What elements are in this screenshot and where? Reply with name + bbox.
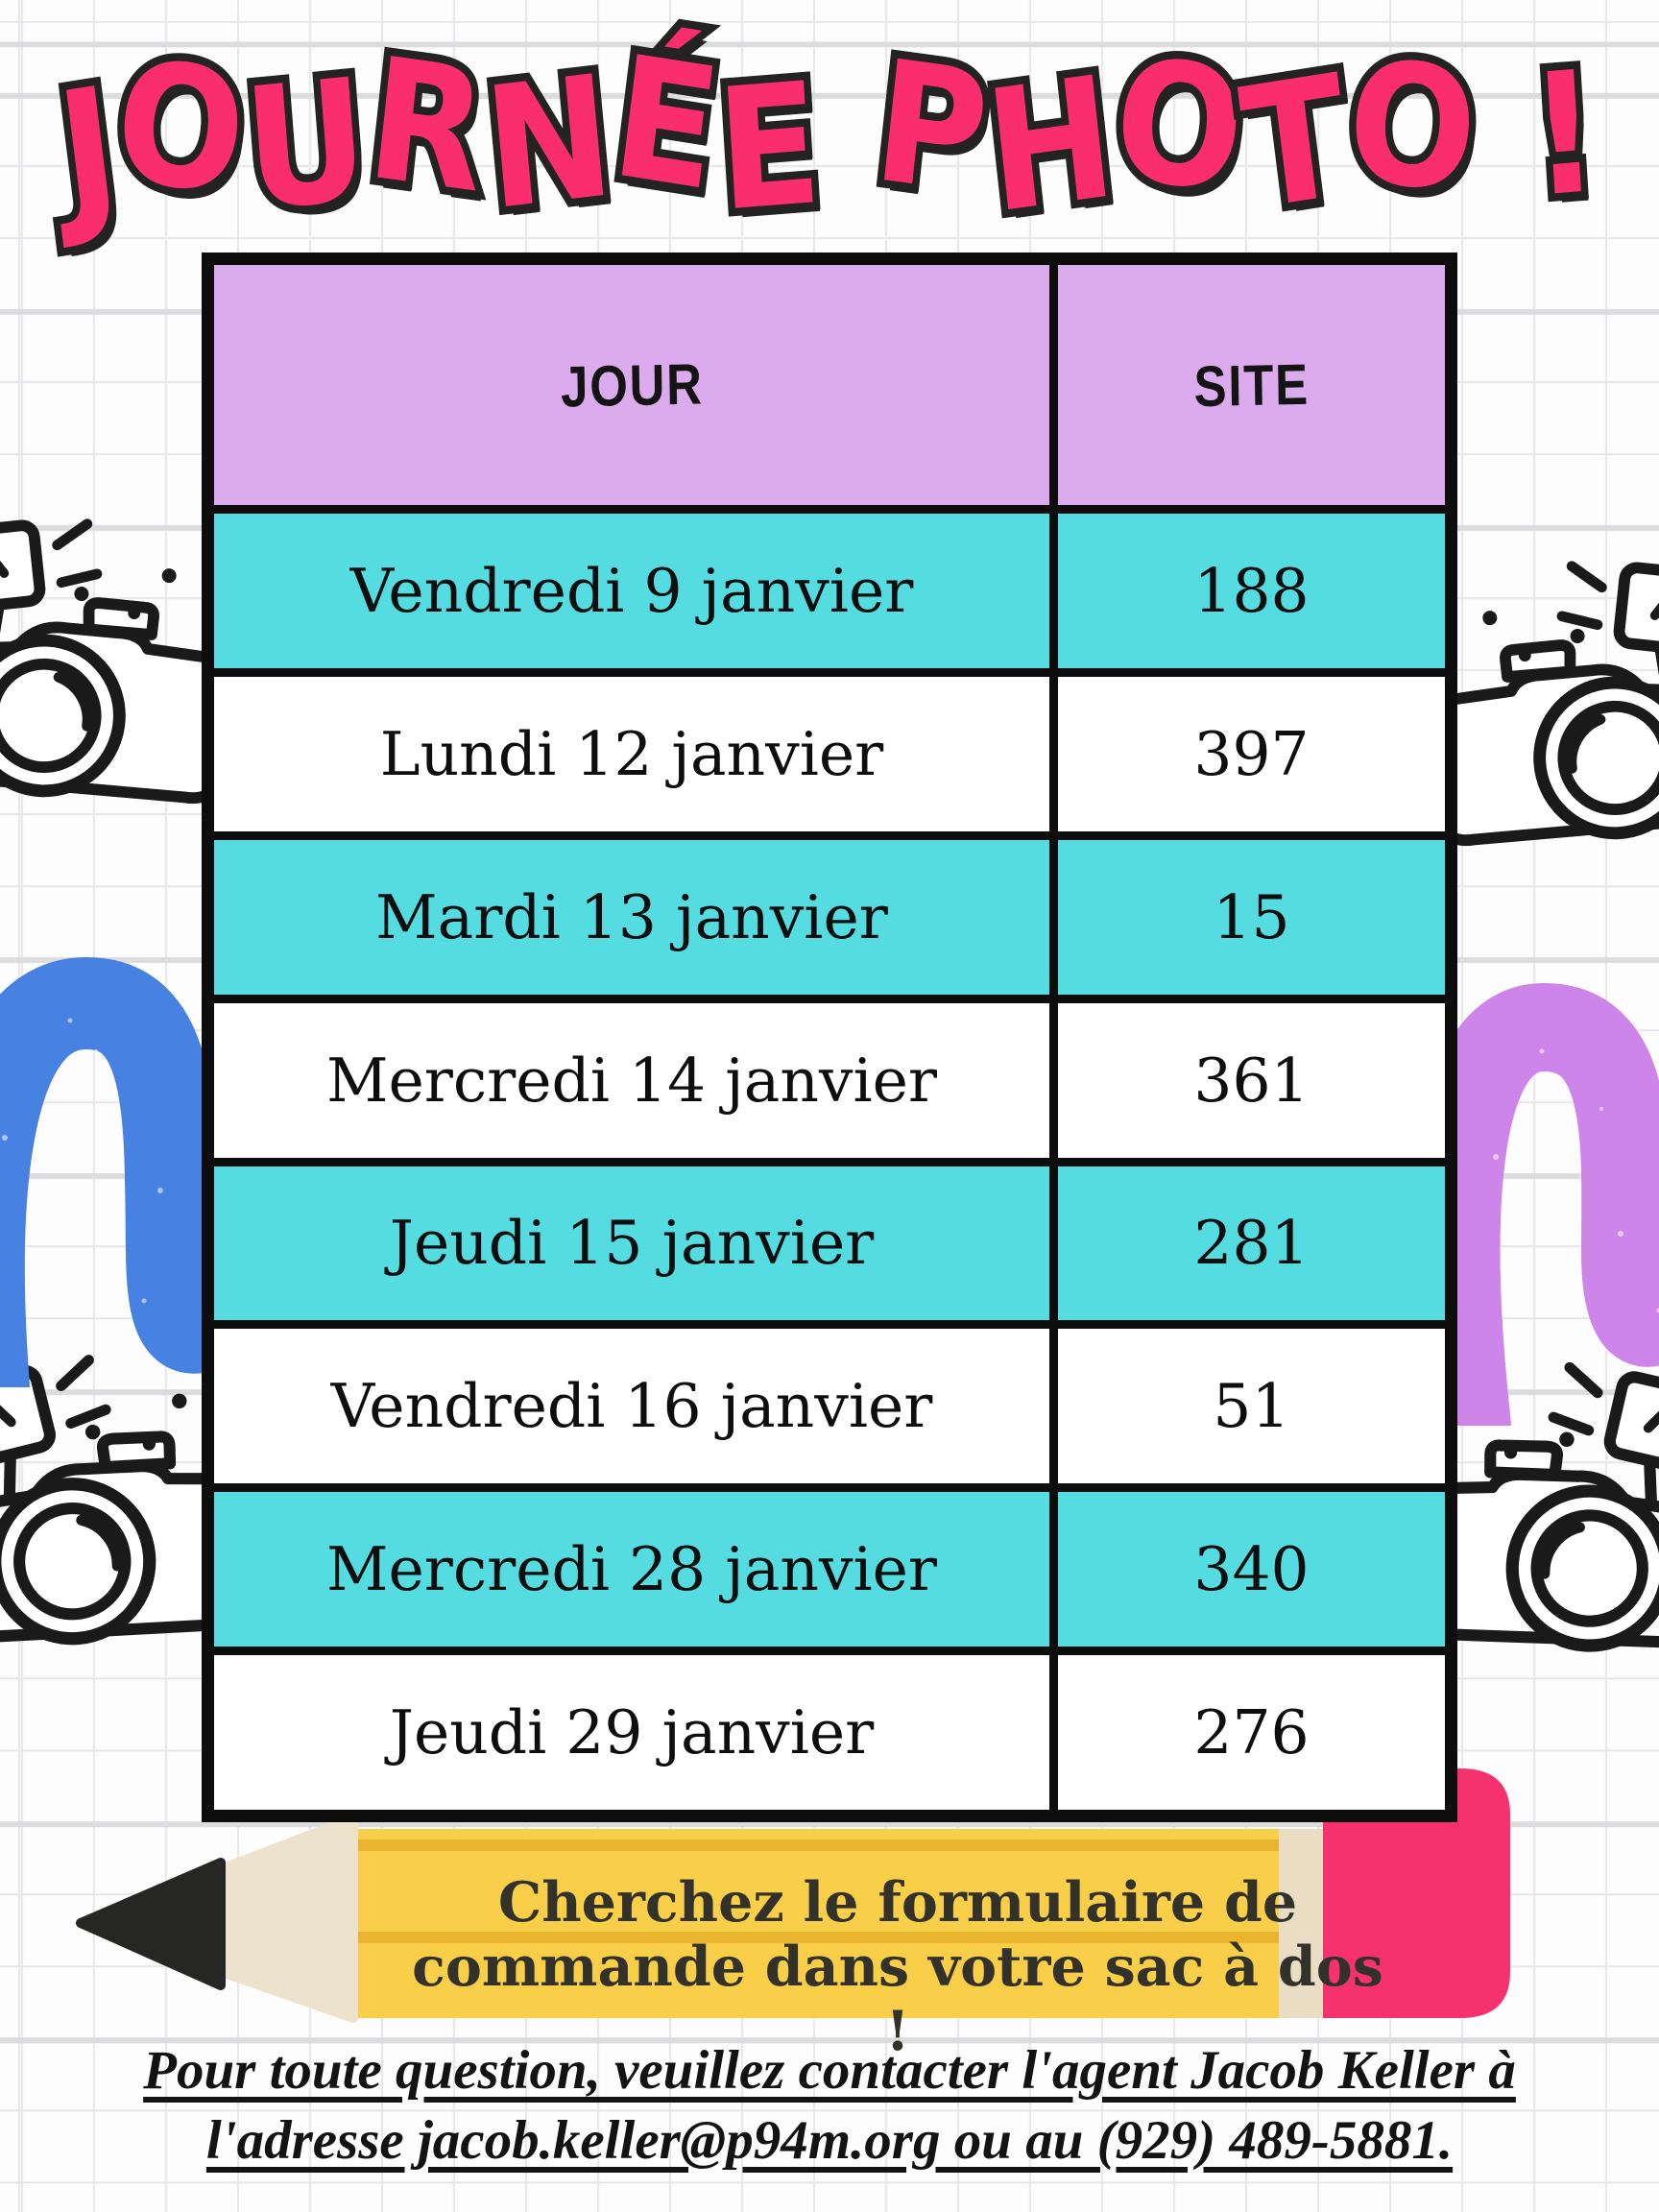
day-label: Jeudi 29 janvier [390,1697,875,1767]
column-header-jour: JOUR [214,265,1049,505]
contact-note-line2: l'adresse jacob.keller@p94m.org ou au (9… [29,2105,1630,2176]
table-row-site-cell: 361 [1058,1003,1445,1158]
table-row-day-cell: Vendredi 9 janvier [214,514,1049,668]
day-label: Lundi 12 janvier [380,719,884,789]
contact-note: Pour toute question, veuillez contacter … [29,2035,1630,2176]
column-header-site: SITE [1058,265,1445,505]
contact-note-line1-text: Pour toute question, veuillez contacter … [143,2040,1516,2101]
day-label: Mardi 13 janvier [375,882,888,952]
site-number: 188 [1193,556,1309,626]
site-number: 340 [1193,1534,1309,1604]
table-row-day-cell: Jeudi 29 janvier [214,1655,1049,1810]
poster-title: JOURNÉEPHOTO! [0,12,1659,261]
table-row-day-cell: Jeudi 15 janvier [214,1166,1049,1321]
pencil-note-line1: Cherchez le formulaire de [403,1870,1392,1935]
site-number: 361 [1193,1046,1309,1116]
table-row-day-cell: Mardi 13 janvier [214,840,1049,995]
table-row-day-cell: Mercredi 28 janvier [214,1492,1049,1647]
table-row-site-cell: 15 [1058,840,1445,995]
column-header-jour-label: JOUR [560,350,703,420]
site-number: 281 [1193,1208,1309,1278]
site-number: 51 [1213,1371,1289,1441]
table-row-site-cell: 340 [1058,1492,1445,1647]
table-row-site-cell: 276 [1058,1655,1445,1810]
photo-day-table: JOUR SITE Vendredi 9 janvier 188 Lundi 1… [202,252,1457,1822]
purple-squiggle-icon [1429,946,1659,1426]
photo-day-flyer: JOURNÉEPHOTO! Cherchez le formulaire de … [0,0,1659,2212]
site-number: 15 [1213,882,1289,952]
day-label: Vendredi 16 janvier [331,1371,933,1441]
table-row-day-cell: Mercredi 14 janvier [214,1003,1049,1158]
site-number: 276 [1193,1697,1309,1767]
table-row-day-cell: Vendredi 16 janvier [214,1329,1049,1483]
day-label: Mercredi 14 janvier [326,1046,937,1116]
table-row-site-cell: 51 [1058,1329,1445,1483]
table-row-day-cell: Lundi 12 janvier [214,677,1049,831]
site-number: 397 [1193,719,1309,789]
pencil-note: Cherchez le formulaire de commande dans … [403,1870,1392,2063]
table-row-site-cell: 397 [1058,677,1445,831]
day-label: Mercredi 28 janvier [326,1534,937,1604]
column-header-site-label: SITE [1193,350,1310,419]
day-label: Jeudi 15 janvier [390,1208,875,1278]
table-row-site-cell: 281 [1058,1166,1445,1321]
contact-note-line1: Pour toute question, veuillez contacter … [29,2035,1630,2105]
contact-note-line2-text: l'adresse jacob.keller@p94m.org ou au (9… [206,2110,1453,2171]
day-label: Vendredi 9 janvier [350,556,914,626]
table-row-site-cell: 188 [1058,514,1445,668]
